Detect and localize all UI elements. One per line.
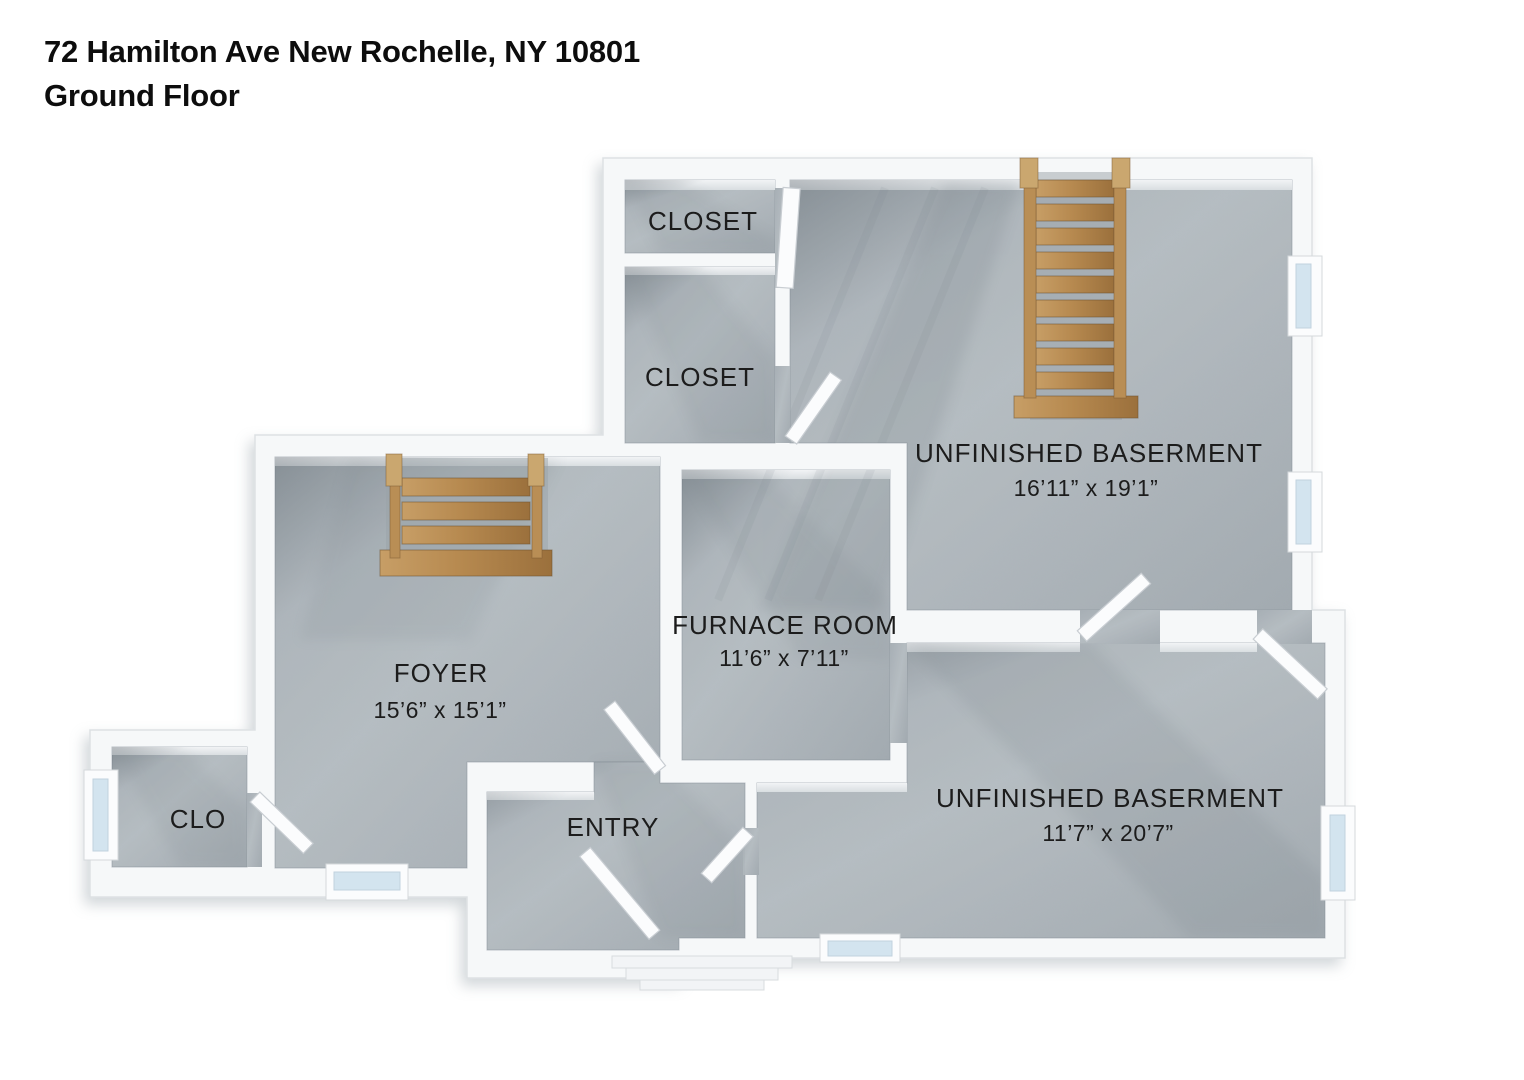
window-right-upper-1 xyxy=(1288,256,1322,336)
room-label-foyer: FOYER xyxy=(394,658,489,688)
exterior-steps xyxy=(612,956,792,990)
room-label-basement-upper: UNFINISHED BASERMENT xyxy=(915,438,1263,468)
room-dims-furnace: 11’6” x 7’11” xyxy=(719,645,849,671)
floor-plan-svg: CLOSET CLOSET UNFINISHED BASERMENT 16’11… xyxy=(0,0,1524,1080)
window-clo-left xyxy=(84,770,118,860)
staircase-upper-basement xyxy=(1014,158,1138,420)
window-right-upper-2 xyxy=(1288,472,1322,552)
room-label-closet-top: CLOSET xyxy=(648,206,758,236)
stair-treads xyxy=(380,478,552,576)
window-right-lower xyxy=(1321,806,1355,900)
window-bottom-basement xyxy=(820,934,900,962)
room-dims-basement-upper: 16’11” x 19’1” xyxy=(1014,475,1159,501)
room-label-basement-lower: UNFINISHED BASERMENT xyxy=(936,783,1284,813)
page-title-floor: Ground Floor xyxy=(44,74,640,118)
floor-plan-page: 72 Hamilton Ave New Rochelle, NY 10801 G… xyxy=(0,0,1524,1080)
window-foyer-bottom xyxy=(326,864,408,900)
staircase-foyer xyxy=(380,454,552,576)
room-label-entry: ENTRY xyxy=(567,812,660,842)
room-dims-basement-lower: 11’7” x 20’7” xyxy=(1042,820,1173,846)
room-dims-foyer: 15’6” x 15’1” xyxy=(373,697,506,723)
room-label-clo: CLO xyxy=(170,804,226,834)
room-label-closet-mid: CLOSET xyxy=(645,362,755,392)
room-label-furnace: FURNACE ROOM xyxy=(672,610,898,640)
page-title-address: 72 Hamilton Ave New Rochelle, NY 10801 xyxy=(44,30,640,74)
title-block: 72 Hamilton Ave New Rochelle, NY 10801 G… xyxy=(44,30,640,118)
